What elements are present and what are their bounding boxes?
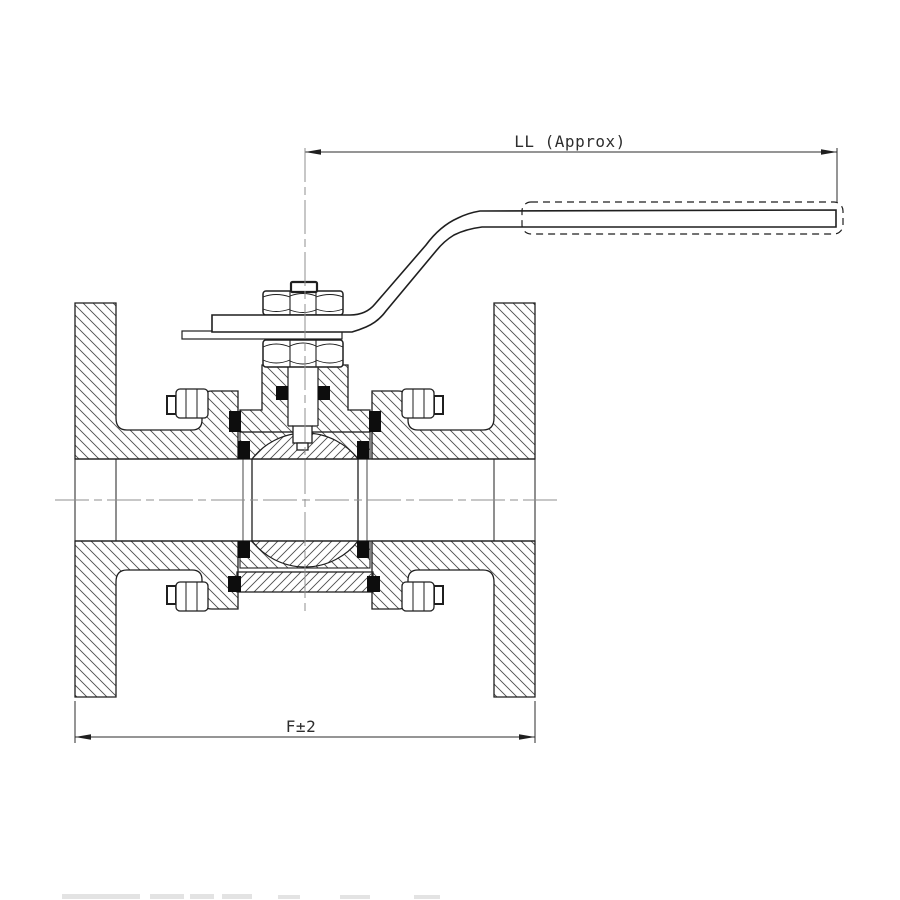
f-dimension-label: F±2: [286, 717, 316, 736]
gland-nut: [263, 340, 343, 367]
drawing-canvas: LL (Approx) F±2: [0, 0, 900, 900]
stem-nut: [263, 291, 343, 315]
stem-cap: [291, 282, 317, 292]
ll-dimension-label: LL (Approx): [514, 132, 625, 151]
valve-technical-drawing: LL (Approx) F±2: [0, 0, 900, 900]
